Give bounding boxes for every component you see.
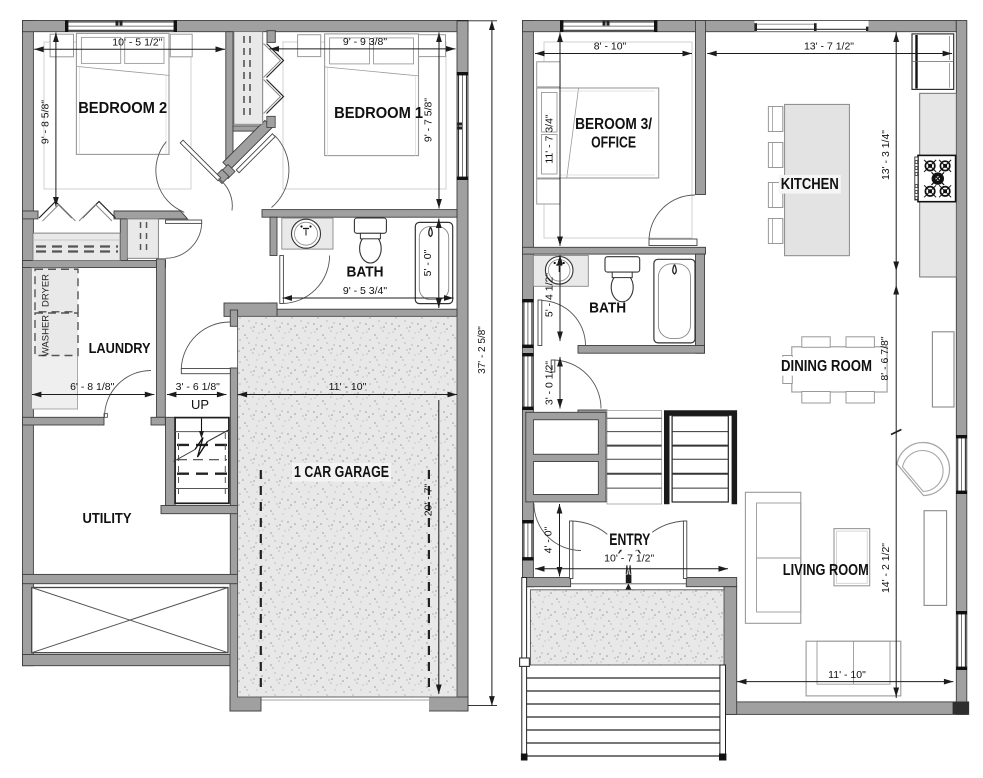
svg-text:5' - 0": 5' - 0": [422, 249, 434, 276]
svg-text:ENTRY: ENTRY: [609, 531, 650, 549]
svg-text:37' - 2 5/8": 37' - 2 5/8": [477, 326, 488, 374]
svg-text:1 CAR GARAGE: 1 CAR GARAGE: [294, 464, 389, 481]
svg-text:14' - 2 1/2": 14' - 2 1/2": [880, 543, 892, 593]
svg-text:13' - 7 1/2": 13' - 7 1/2": [804, 41, 854, 53]
svg-text:10' - 5 1/2'': 10' - 5 1/2'': [112, 37, 162, 49]
svg-text:DINING ROOM: DINING ROOM: [781, 358, 872, 375]
svg-text:WASHER: WASHER: [41, 315, 52, 356]
svg-text:10' - 7 1/2": 10' - 7 1/2": [604, 553, 654, 565]
svg-text:11' - 10": 11' - 10": [329, 381, 367, 393]
svg-text:13' - 3 1/4": 13' - 3 1/4": [880, 130, 892, 180]
svg-text:KITCHEN: KITCHEN: [781, 176, 839, 193]
svg-text:LAUNDRY: LAUNDRY: [89, 341, 151, 357]
svg-text:BEDROOM 1: BEDROOM 1: [334, 105, 423, 122]
svg-text:9' - 5 3/4": 9' - 5 3/4": [343, 285, 388, 297]
svg-text:20' - 7": 20' - 7": [422, 483, 434, 516]
svg-text:BEDROOM 2: BEDROOM 2: [78, 100, 167, 117]
svg-text:3' - 0 1/2": 3' - 0 1/2": [544, 361, 556, 406]
svg-text:8' - 10": 8' - 10": [594, 41, 627, 53]
svg-text:BATH: BATH: [589, 299, 626, 316]
svg-text:BATH: BATH: [347, 264, 384, 281]
svg-text:UTILITY: UTILITY: [83, 511, 132, 527]
svg-text:8' - 6 7/8": 8' - 6 7/8": [879, 336, 891, 381]
svg-text:4' - 0": 4' - 0": [543, 526, 555, 553]
svg-text:OFFICE: OFFICE: [591, 135, 636, 152]
svg-text:DRYER: DRYER: [41, 274, 52, 307]
svg-text:9' - 9 3/8": 9' - 9 3/8": [343, 36, 388, 48]
svg-text:11' - 10": 11' - 10": [828, 669, 866, 681]
svg-text:9' - 7 5/8": 9' - 7 5/8": [423, 98, 435, 143]
svg-text:6' - 8 1/8": 6' - 8 1/8": [70, 381, 115, 393]
svg-text:LIVING ROOM: LIVING ROOM: [783, 562, 869, 579]
svg-text:5' - 4 1/2": 5' - 4 1/2": [544, 273, 556, 318]
svg-text:3' - 6 1/8": 3' - 6 1/8": [176, 381, 221, 393]
svg-text:9' - 8 5/8": 9' - 8 5/8": [40, 100, 52, 145]
svg-text:BEROOM 3/: BEROOM 3/: [575, 116, 653, 133]
svg-text:UP: UP: [191, 397, 209, 412]
svg-text:11' - 7 3/4": 11' - 7 3/4": [544, 114, 556, 164]
